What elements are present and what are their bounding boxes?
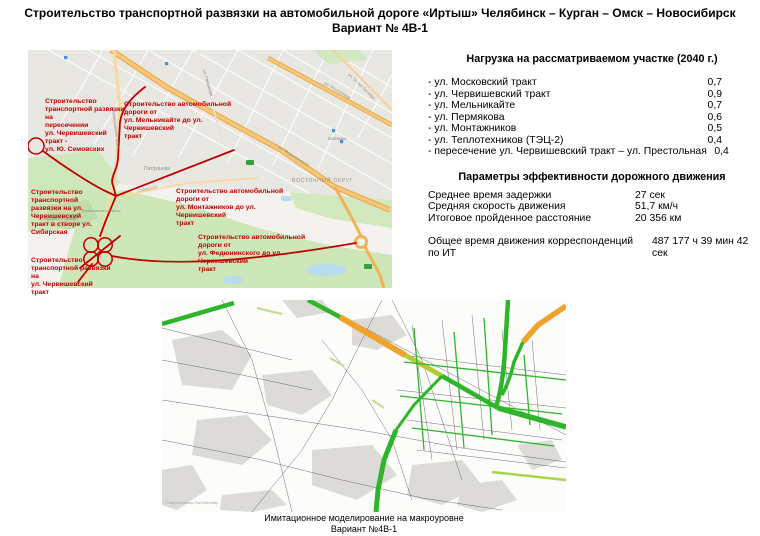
load-row-label: - ул. Московский тракт	[428, 77, 700, 89]
efficiency-row: Среднее время задержки27 сек	[428, 190, 756, 202]
page-title: Строительство транспортной развязки на а…	[0, 6, 760, 36]
load-row: - ул. Червишевский тракт0,9	[428, 89, 722, 101]
efficiency-row: Средняя скорость движения51,7 км/ч	[428, 201, 756, 213]
load-row: - ул. Московский тракт0,7	[428, 77, 722, 89]
station-label: Войновка	[328, 136, 347, 141]
efficiency-row-value: 51,7 км/ч	[635, 201, 678, 213]
total-travel-time-row: Общее время движения корреспонденций по …	[428, 236, 756, 259]
total-travel-time-value: 487 177 ч 39 мин 42 сек	[652, 236, 756, 259]
page-title-line1: Строительство транспортной развязки на а…	[0, 6, 760, 21]
construction-annotation-fedyuninskogo: Строительство автомобильной дороги от ул…	[198, 234, 316, 274]
construction-annotation-sibirskaya: Строительство транспортной развязки на у…	[31, 189, 121, 237]
efficiency-row-label: Средняя скорость движения	[428, 201, 635, 213]
caption-line1: Имитационное моделирование на макроуровн…	[152, 513, 576, 524]
load-row-value: 0,7	[700, 77, 722, 89]
page-title-line2: Вариант № 4В-1	[0, 21, 760, 36]
efficiency-row-value: 20 356 км	[635, 213, 681, 225]
efficiency-row-label: Итоговое пройденное расстояние	[428, 213, 635, 225]
total-travel-time-label: Общее время движения корреспонденций по …	[428, 236, 642, 259]
load-row-value: 0,4	[707, 146, 729, 158]
load-row: - ул. Пермякова0,6	[428, 112, 722, 124]
district-label: ВОСТОЧНЫЙ ОКРУГ	[292, 176, 353, 184]
load-row-label: - пересечение ул. Червишевский тракт – у…	[428, 146, 707, 158]
simulation-map-caption: Имитационное моделирование на макроуровн…	[152, 513, 576, 535]
load-row-value: 0,7	[700, 100, 722, 112]
construction-annotation-melnikayte: Строительство автомобильной дороги от ул…	[124, 101, 244, 141]
load-row-value: 0,4	[700, 135, 722, 147]
efficiency-row: Итоговое пройденное расстояние20 356 км	[428, 213, 756, 225]
load-row-label: - ул. Пермякова	[428, 112, 700, 124]
efficiency-section-heading: Параметры эффективности дорожного движен…	[428, 171, 756, 183]
construction-annotation-semovskikh: Строительство транспортной развязки на п…	[45, 98, 125, 154]
load-row-value: 0,9	[700, 89, 722, 101]
construction-annotation-montazhnikov: Строительство автомобильной дороги от ул…	[176, 188, 291, 228]
load-rows: - ул. Московский тракт0,7 - ул. Червишев…	[428, 77, 756, 158]
load-row-label: - ул. Мельникайте	[428, 100, 700, 112]
load-row-label: - ул. Теплотехников (ТЭЦ-2)	[428, 135, 700, 147]
load-row-value: 0,6	[700, 112, 722, 124]
load-row-label: - ул. Монтажников	[428, 123, 700, 135]
construction-annotation-chervishevsky: Строительство транспортной развязки на у…	[31, 257, 111, 297]
efficiency-row-label: Среднее время задержки	[428, 190, 635, 202]
map-attribution: © Картматериалы OpenStreetMap	[165, 501, 218, 505]
load-row: - ул. Мельникайте0,7	[428, 100, 722, 112]
village-label: Патрушева	[144, 166, 170, 172]
efficiency-row-value: 27 сек	[635, 190, 665, 202]
simulation-map-canvas: © Картматериалы OpenStreetMap	[162, 300, 566, 512]
efficiency-rows: Среднее время задержки27 сек Средняя ско…	[428, 190, 756, 225]
info-panel: Нагрузка на рассматриваемом участке (204…	[428, 53, 756, 259]
load-row: - пересечение ул. Червишевский тракт – у…	[428, 146, 722, 158]
caption-line2: Вариант №4В-1	[152, 524, 576, 535]
load-section-heading: Нагрузка на рассматриваемом участке (204…	[428, 53, 756, 65]
road-number-badge	[246, 160, 254, 165]
load-row-label: - ул. Червишевский тракт	[428, 89, 700, 101]
load-row: - ул. Монтажников0,5	[428, 123, 722, 135]
simulation-map: © Картматериалы OpenStreetMap	[162, 300, 566, 512]
load-row-value: 0,5	[700, 123, 722, 135]
load-row: - ул. Теплотехников (ТЭЦ-2)0,4	[428, 135, 722, 147]
road-number-badge	[364, 264, 372, 269]
plan-map: ВОСТОЧНЫЙ ОКРУГ Патрушева Войновка Черви…	[28, 50, 392, 288]
